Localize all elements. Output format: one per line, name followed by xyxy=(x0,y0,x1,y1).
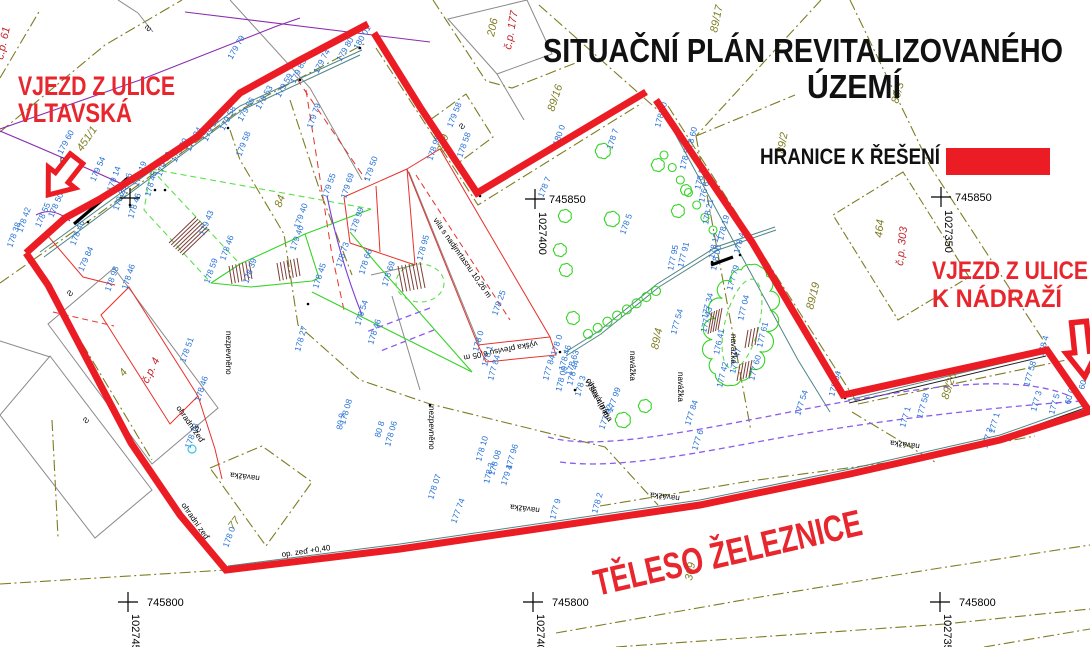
svg-text:745850: 745850 xyxy=(549,194,586,206)
svg-text:745800: 745800 xyxy=(959,597,996,609)
svg-text:464: 464 xyxy=(873,219,887,239)
svg-text:1027400: 1027400 xyxy=(534,614,546,647)
svg-text:nezpevněno: nezpevněno xyxy=(224,331,233,375)
svg-text:1027450: 1027450 xyxy=(129,614,141,647)
svg-text:SITUAČNÍ PLÁN REVITALIZOVANÉHO: SITUAČNÍ PLÁN REVITALIZOVANÉHO xyxy=(543,31,1063,69)
svg-text:745800: 745800 xyxy=(552,597,589,609)
svg-text:ÚZEMÍ: ÚZEMÍ xyxy=(807,68,902,105)
svg-text:navážka: navážka xyxy=(628,351,637,381)
svg-text:745850: 745850 xyxy=(955,192,992,204)
svg-text:VLTAVSKÁ: VLTAVSKÁ xyxy=(18,97,132,128)
svg-text:1027400: 1027400 xyxy=(536,212,548,255)
svg-text:745800: 745800 xyxy=(147,597,184,609)
svg-text:HRANICE K ŘEŠENÍ: HRANICE K ŘEŠENÍ xyxy=(760,144,941,169)
svg-text:VJEZD Z ULICE: VJEZD Z ULICE xyxy=(932,257,1088,285)
svg-text:nezpevněno: nezpevněno xyxy=(427,406,436,450)
svg-text:1027350: 1027350 xyxy=(942,210,954,253)
svg-text:VJEZD Z ULICE: VJEZD Z ULICE xyxy=(18,71,175,101)
svg-text:1027350: 1027350 xyxy=(941,614,953,647)
svg-text:K NÁDRAŽÍ: K NÁDRAŽÍ xyxy=(932,283,1063,313)
svg-text:navážka: navážka xyxy=(729,334,738,364)
svg-text:navážka: navážka xyxy=(676,372,685,402)
